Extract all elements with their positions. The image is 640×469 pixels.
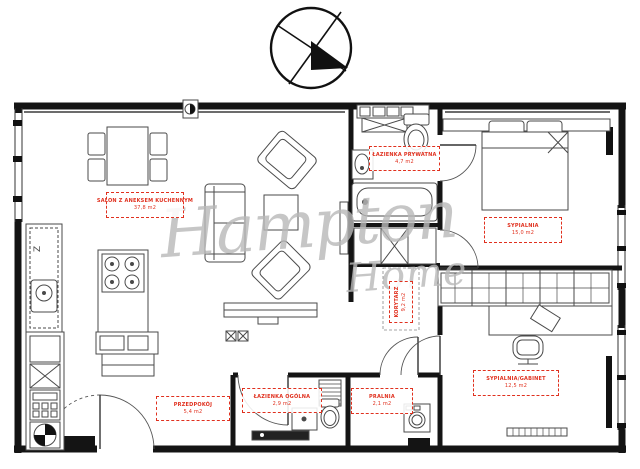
room-label-salon: SALON Z ANEKSEM KUCHENNYM 37,8 m2 xyxy=(106,192,184,218)
bed xyxy=(443,119,610,210)
bathtub xyxy=(352,183,437,221)
coffee-table xyxy=(264,195,298,230)
room-name: KORYTARZ xyxy=(394,286,401,317)
floor-plan: Z xyxy=(0,0,640,469)
wardrobe-row xyxy=(438,270,612,306)
dining-set xyxy=(88,127,167,185)
room-label-pralnia: PRALNIA 2,1 m2 xyxy=(351,388,413,414)
room-area: 5,4 m2 xyxy=(184,409,203,416)
room-area: 9,2 m2 xyxy=(401,293,408,312)
towel-radiator xyxy=(252,431,309,440)
room-label-sypialnia: SYPIALNIA 15,0 m2 xyxy=(484,217,562,243)
room-name: ŁAZIENKA OGÓLNA xyxy=(254,394,311,401)
room-area: 2,9 m2 xyxy=(273,401,292,408)
kitchen-tall-unit xyxy=(26,332,64,450)
room-name: PRALNIA xyxy=(369,394,395,401)
sofa xyxy=(205,184,245,262)
room-label-lazienka-prywatna: ŁAZIENKA PRYWATNA 4,7 m2 xyxy=(369,146,440,171)
room-area: 37,8 m2 xyxy=(134,205,156,212)
room-label-lazienka-ogolna: ŁAZIENKA OGÓLNA 2,9 m2 xyxy=(242,388,322,413)
room-area: 4,7 m2 xyxy=(395,159,414,166)
sideboard xyxy=(224,303,317,324)
armchair xyxy=(250,239,312,301)
room-area: 15,0 m2 xyxy=(512,230,534,237)
desk xyxy=(489,305,612,335)
kitchen-mark: Z xyxy=(33,246,43,252)
room-label-przedpokoj: PRZEDPOKÓJ 5,4 m2 xyxy=(156,396,230,421)
room-name: ŁAZIENKA PRYWATNA xyxy=(372,152,436,159)
room-area: 12,5 m2 xyxy=(505,383,527,390)
tv-unit xyxy=(340,202,348,254)
room-area: 2,1 m2 xyxy=(373,401,392,408)
room-label-korytarz: KORYTARZ 9,2 m2 xyxy=(389,281,413,323)
kitchen-island-stove xyxy=(96,250,158,376)
room-name: SYPIALNIA xyxy=(507,223,539,230)
vent-shaft xyxy=(226,331,248,341)
room-name: PRZEDPOKÓJ xyxy=(174,402,212,409)
room-label-sypialnia-gabinet: SYPIALNIA/GABINET 12,5 m2 xyxy=(473,370,559,396)
kitchen-counter: Z xyxy=(26,224,62,332)
toilet xyxy=(320,399,339,428)
room-name: SYPIALNIA/GABINET xyxy=(486,376,546,383)
radiator xyxy=(507,428,567,436)
office-chair xyxy=(513,336,543,364)
room-name: SALON Z ANEKSEM KUCHENNYM xyxy=(97,198,193,205)
closet xyxy=(354,228,436,264)
armchair xyxy=(256,129,318,190)
compass-north-icon xyxy=(271,8,351,88)
